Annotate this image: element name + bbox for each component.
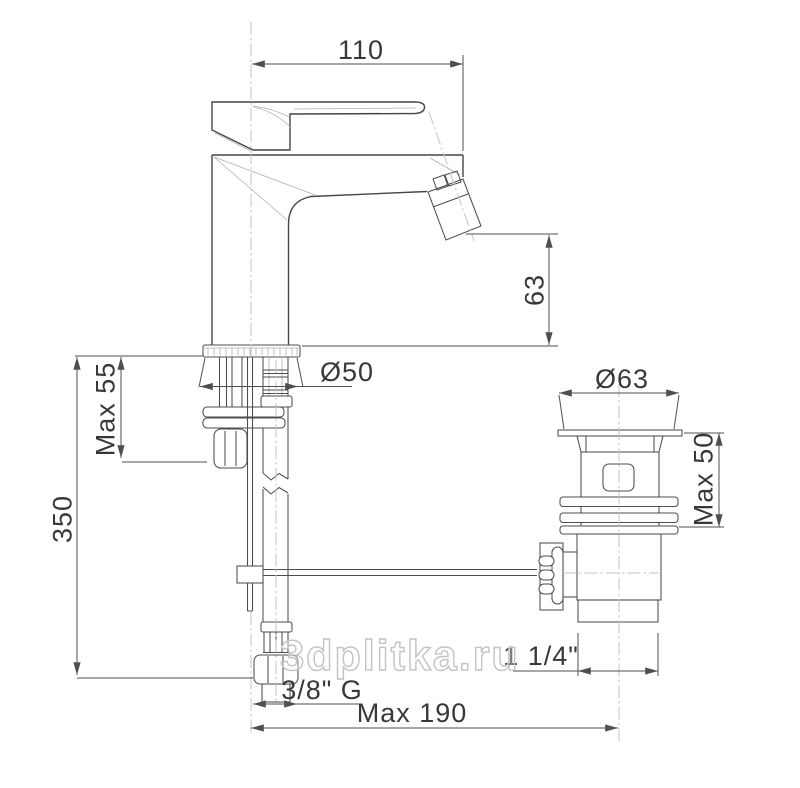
thumbscrew-slot-2: [539, 570, 554, 580]
dim-d50-label: Ø50: [320, 357, 374, 387]
body-underside: [289, 192, 428, 346]
dimensions: 110 63 Max 55 350 Ø50 Ø6: [47, 35, 724, 728]
watermark-text: 3dplitka.ru: [280, 632, 519, 680]
faucet-spout-aerator: [428, 171, 481, 240]
dim-110: 110: [252, 35, 463, 151]
dim-max50-label: Max 50: [688, 432, 718, 527]
drain-neck: [577, 436, 663, 452]
technical-drawing-page: 110 63 Max 55 350 Ø50 Ø6: [0, 0, 800, 788]
body-construction-3: [430, 158, 460, 175]
pull-rod-lower: [248, 583, 253, 611]
spout-axis-centerline: [429, 112, 474, 241]
dim-63: 63: [302, 234, 558, 346]
thumbscrew-slot-1: [539, 556, 554, 566]
drain-flange: [558, 430, 682, 436]
drain-body-sliver-1: [581, 507, 659, 514]
horizontal-link-rod: [263, 570, 537, 576]
dim-350: 350: [47, 357, 253, 678]
dim-max55: Max 55: [75, 356, 207, 462]
dim-d63-label: Ø63: [595, 364, 649, 394]
rod-clamp-block: [237, 566, 263, 583]
dim-max50: Max 50: [679, 432, 724, 527]
faucet-body: [212, 155, 463, 345]
mounting-washer-2: [203, 418, 285, 428]
drain-assembly: [539, 430, 682, 622]
rod-connector-stub: [563, 552, 577, 597]
dim-diameter-50: Ø50: [199, 357, 374, 387]
dim-350-label: 350: [47, 495, 77, 543]
aerator-divider: [433, 194, 468, 207]
body-construction-2: [214, 157, 315, 195]
handle-wedge-line: [215, 133, 251, 151]
handle-inner-line: [294, 108, 416, 109]
drain-body-upper: [581, 452, 659, 497]
dim-63-label: 63: [519, 274, 549, 306]
dim-max55-label: Max 55: [90, 362, 120, 457]
dim-max190-label: Max 190: [357, 698, 468, 728]
pull-rod-upper: [248, 357, 253, 566]
drain-tailpipe: [578, 600, 658, 622]
thumbscrew-slot-3: [539, 584, 554, 594]
dim-114-extensions: [578, 633, 658, 676]
dim-d50-extensions: [199, 358, 303, 387]
mounting-washer-1: [203, 407, 284, 417]
dim-110-label: 110: [338, 35, 384, 65]
dim-1-1-4-inch: 1 1/4": [503, 633, 658, 676]
mounting-nut: [214, 429, 247, 468]
bidet-mixer-drawing: 110 63 Max 55 350 Ø50 Ø6: [0, 0, 800, 788]
faucet-handle: [212, 102, 425, 151]
